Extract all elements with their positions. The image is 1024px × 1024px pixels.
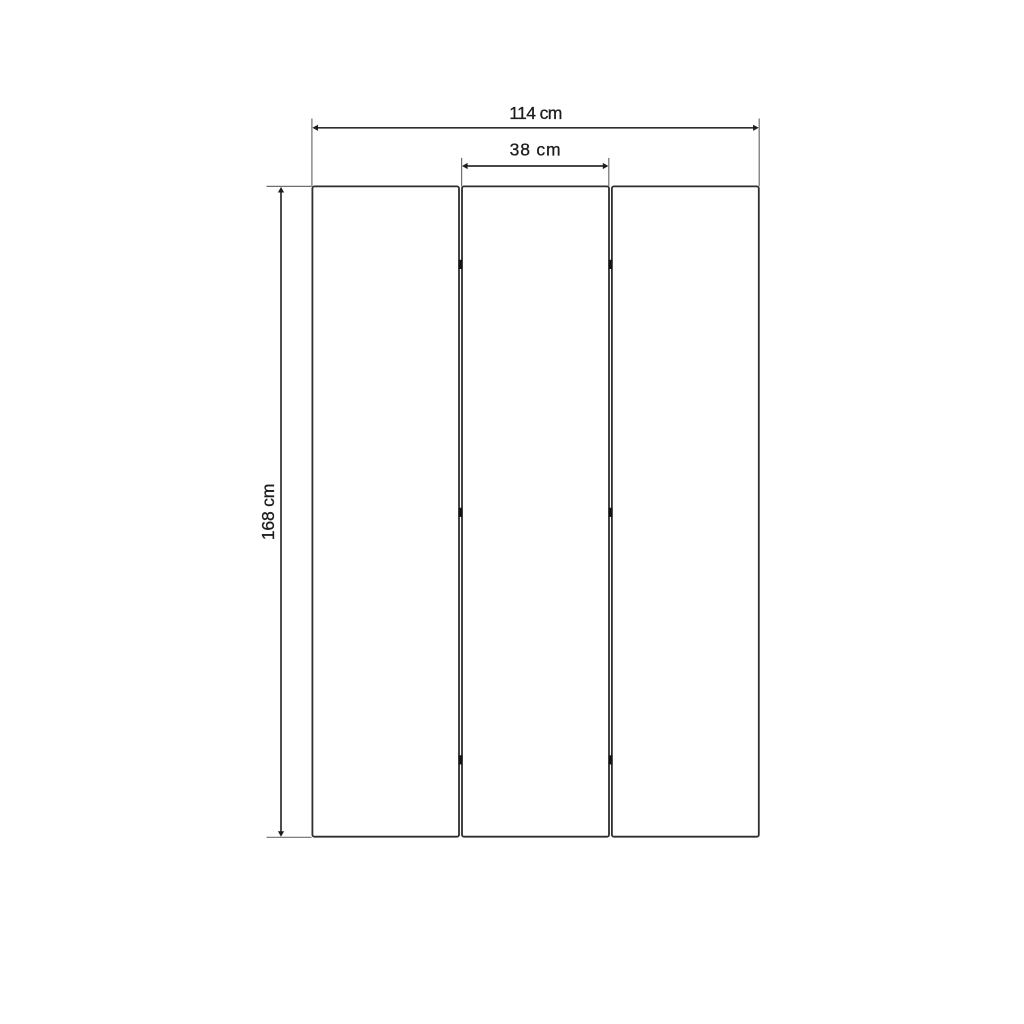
svg-text:114 cm: 114 cm bbox=[509, 103, 562, 123]
svg-text:168 cm: 168 cm bbox=[258, 484, 278, 540]
svg-text:38 cm: 38 cm bbox=[510, 140, 562, 160]
